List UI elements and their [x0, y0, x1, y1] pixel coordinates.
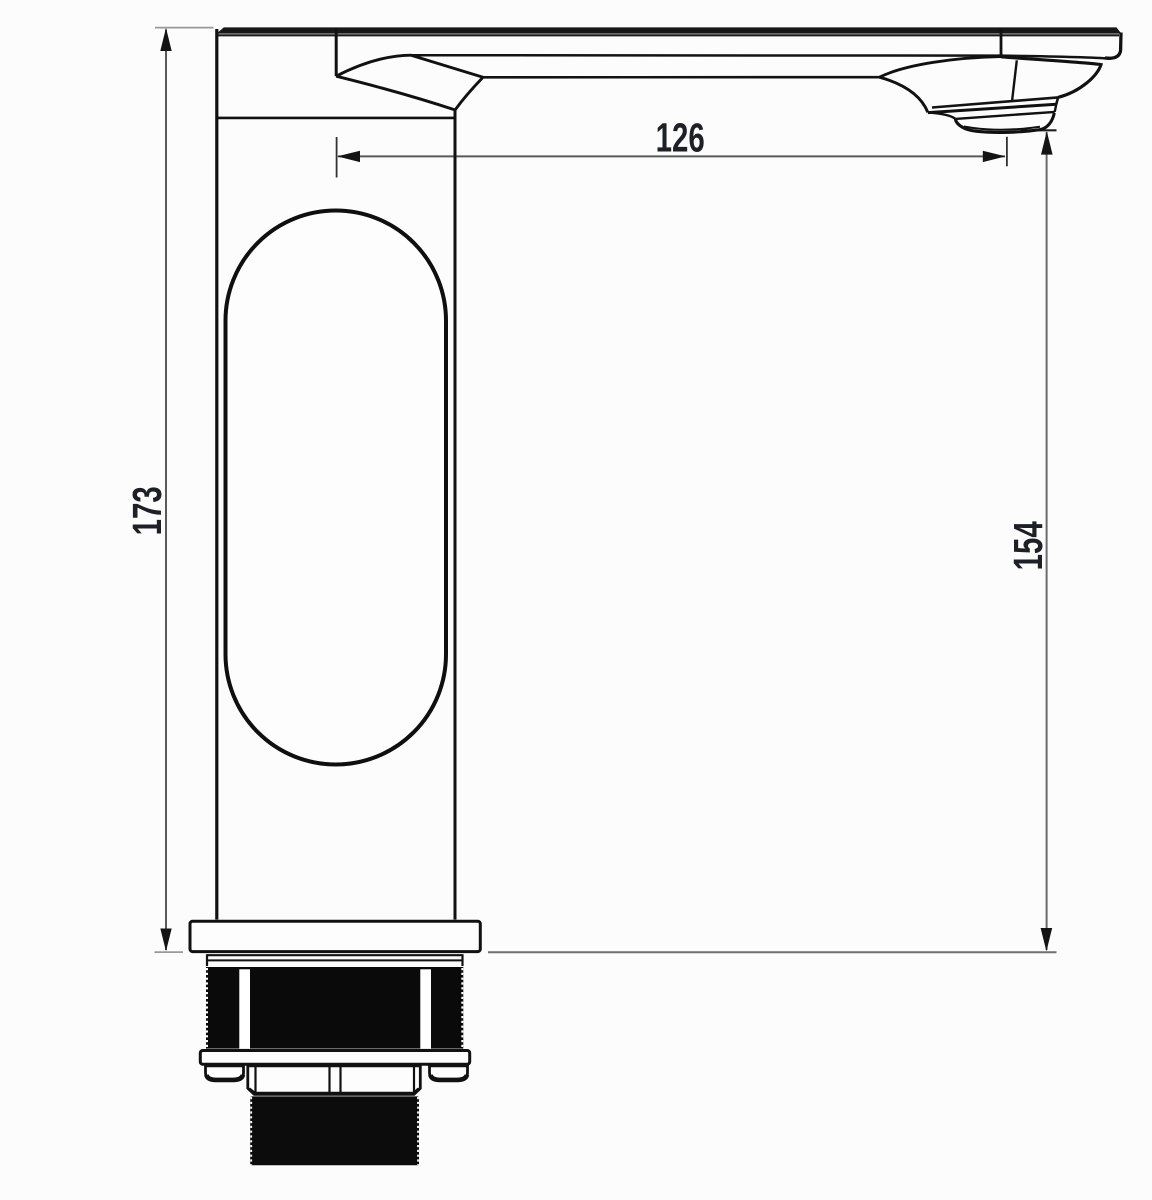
svg-text:173: 173	[124, 486, 170, 535]
svg-text:126: 126	[656, 115, 705, 161]
svg-text:154: 154	[1005, 521, 1051, 570]
